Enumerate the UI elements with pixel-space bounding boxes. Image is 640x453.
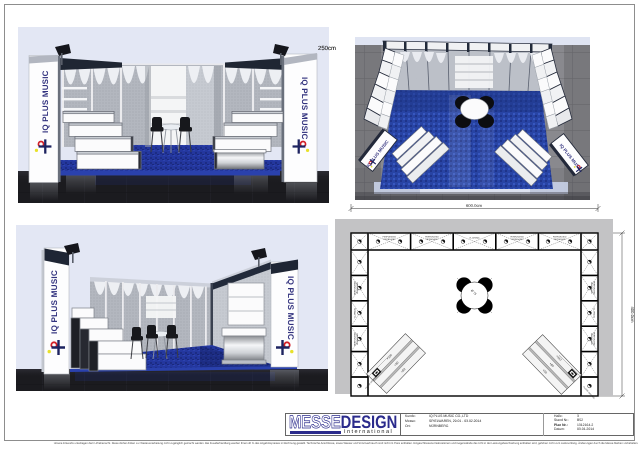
svg-text:IQ PLUS MUSIC: IQ PLUS MUSIC bbox=[300, 77, 309, 140]
svg-text:PEGBOARD: PEGBOARD bbox=[426, 238, 438, 241]
svg-text:PEGBOARD: PEGBOARD bbox=[384, 238, 396, 241]
svg-text:400.0cm: 400.0cm bbox=[630, 306, 635, 323]
svg-text:IQ PLUS MUSIC: IQ PLUS MUSIC bbox=[41, 70, 50, 133]
svg-text:PEGBOARD: PEGBOARD bbox=[554, 238, 566, 241]
svg-text:VL.APANAL: VL.APANAL bbox=[469, 236, 481, 239]
svg-text:PEGBOARD: PEGBOARD bbox=[511, 238, 523, 241]
svg-text:VL.APANAL: VL.APANAL bbox=[593, 308, 596, 320]
svg-text:IQ PLUS MUSIC: IQ PLUS MUSIC bbox=[286, 276, 295, 340]
svg-text:250cm: 250cm bbox=[318, 45, 336, 52]
svg-text:600.0cm: 600.0cm bbox=[466, 203, 483, 208]
svg-text:VL.APANAL: VL.APANAL bbox=[354, 307, 357, 319]
svg-text:IQ PLUS MUSIC: IQ PLUS MUSIC bbox=[50, 270, 59, 334]
